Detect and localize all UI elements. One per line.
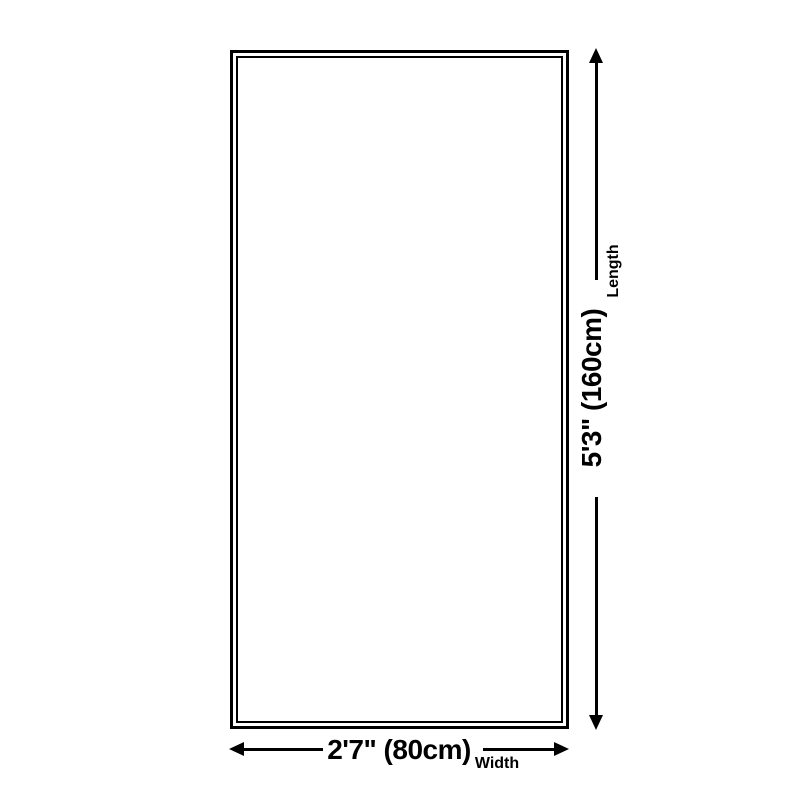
size-diagram: Length 5'3" (160cm) 2'7" (80cm) Width <box>0 0 800 800</box>
length-label: Length <box>605 244 623 297</box>
rug-outline <box>230 50 569 729</box>
length-value: 5'3" (160cm) <box>576 309 608 468</box>
arrow-down-icon <box>589 715 603 730</box>
arrow-right-icon <box>554 742 569 756</box>
length-line-bottom <box>595 497 598 715</box>
rug-inner-border <box>236 56 563 723</box>
length-line-top <box>595 58 598 280</box>
width-value: 2'7" (80cm) <box>327 734 471 766</box>
width-line-left <box>240 748 323 751</box>
width-line-right <box>483 748 556 751</box>
width-label: Width <box>475 755 519 773</box>
